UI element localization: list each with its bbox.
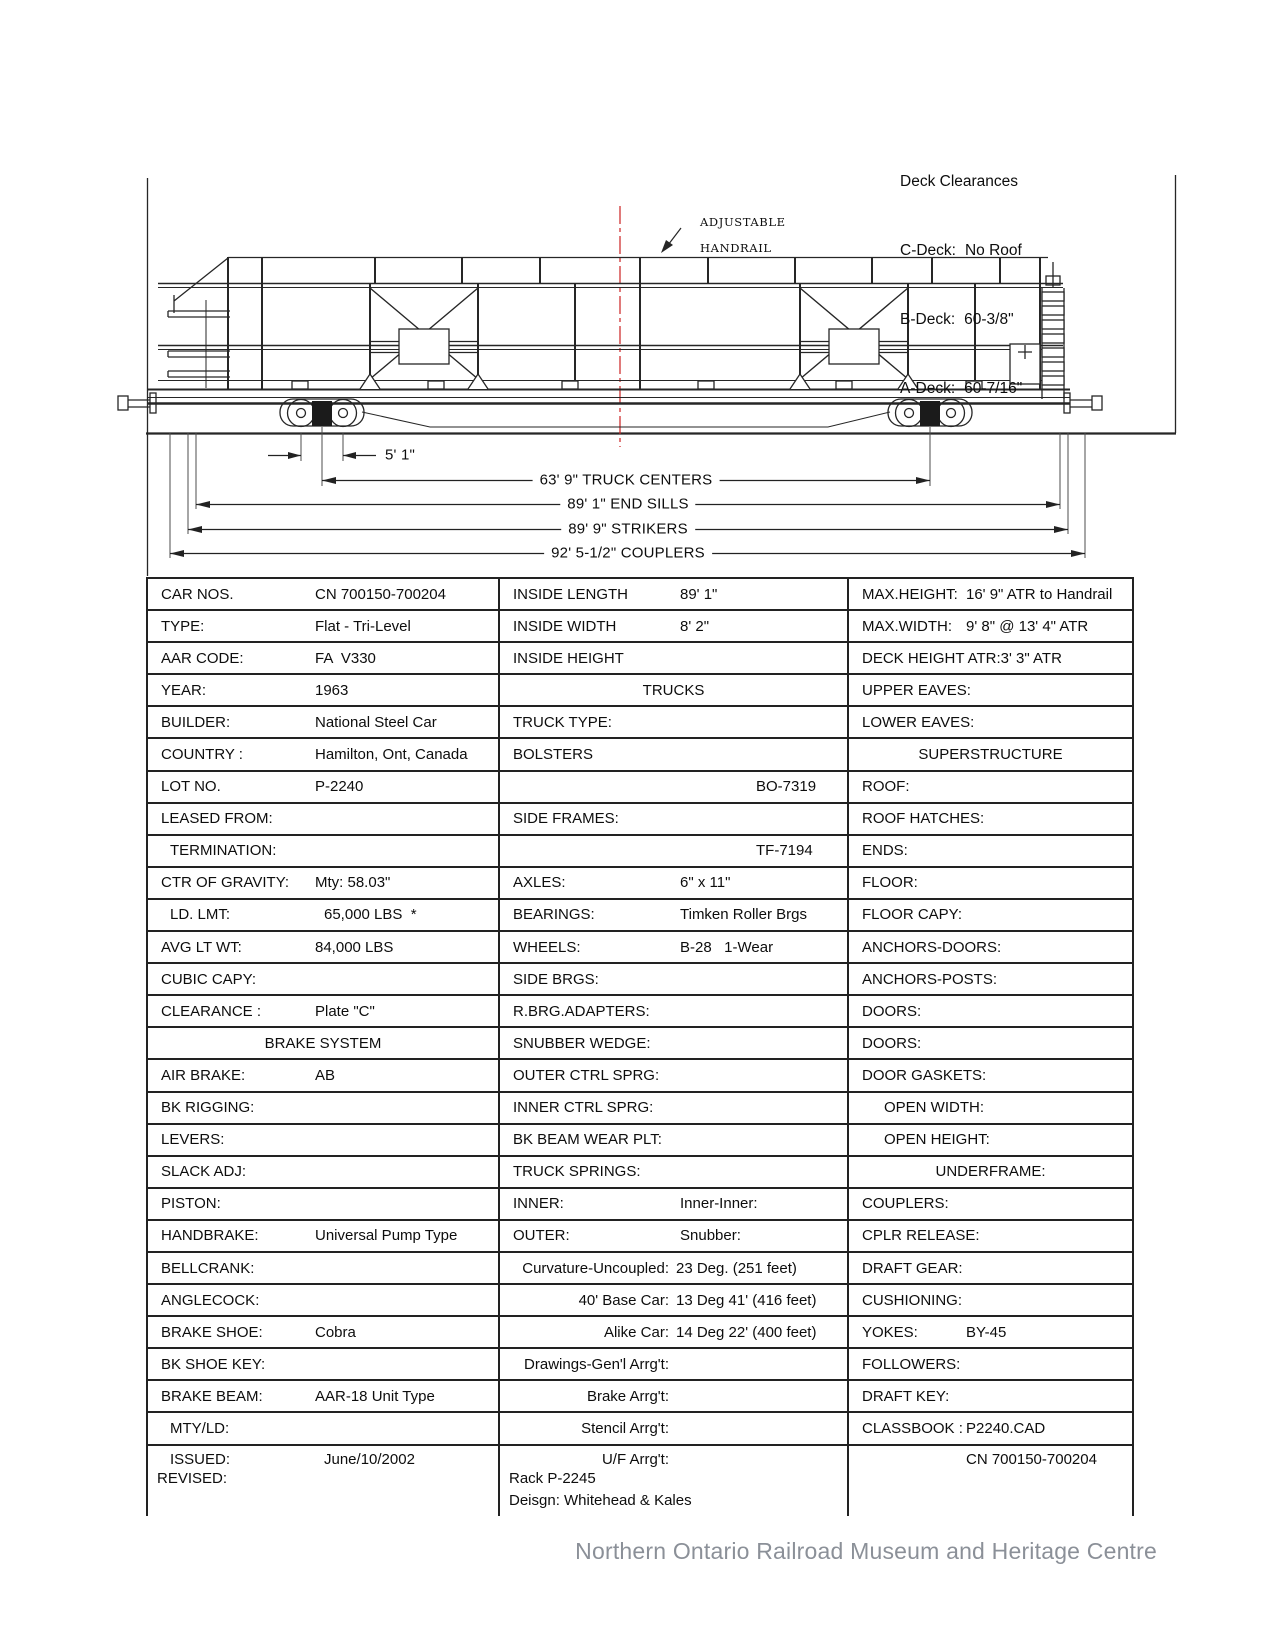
table-cell-label: CLASSBOOK : (862, 1420, 966, 1437)
table-row: 40' Base Car:13 Deg 41' (416 feet) (500, 1285, 847, 1317)
table-cell-label: Alike Car: (513, 1324, 669, 1341)
table-cell-label: BELLCRANK: (161, 1260, 315, 1277)
table-row: BRAKE BEAM:AAR-18 Unit Type (148, 1381, 498, 1413)
table-row: SIDE BRGS: (500, 964, 847, 996)
table-row: MAX.WIDTH:9' 8" @ 13' 4" ATR (849, 611, 1132, 643)
table-row: CAR NOS.CN 700150-700204 (148, 579, 498, 611)
table-cell-label: MAX.WIDTH: (862, 618, 966, 635)
table-row: COUPLERS: (849, 1189, 1132, 1221)
table-row: OPEN WIDTH: (849, 1093, 1132, 1125)
table-row: U/F Arrg't:Rack P-2245Deisgn: Whitehead … (500, 1446, 847, 1516)
table-cell-label: SLACK ADJ: (161, 1163, 315, 1180)
table-row: TRUCK SPRINGS: (500, 1157, 847, 1189)
table-row: DOORS: (849, 1028, 1132, 1060)
table-row: Stencil Arrg't: (500, 1413, 847, 1445)
table-row: INSIDE LENGTH89' 1" (500, 579, 847, 611)
table-row: WHEELS:B-28 1-Wear (500, 932, 847, 964)
table-cell-label: YEAR: (161, 682, 315, 699)
table-row: YEAR:1963 (148, 675, 498, 707)
table-row: ENDS: (849, 836, 1132, 868)
table-row: FLOOR: (849, 868, 1132, 900)
table-row: TRUCK TYPE: (500, 707, 847, 739)
table-cell-label: YOKES: (862, 1324, 966, 1341)
table-row: PISTON: (148, 1189, 498, 1221)
table-cell-value: 23 Deg. (251 feet) (676, 1260, 797, 1277)
table-row: INSIDE WIDTH8' 2" (500, 611, 847, 643)
coupler-right (1064, 393, 1102, 413)
table-cell-label: MTY/LD: (161, 1420, 324, 1437)
table-cell-label: DOORS: (862, 1035, 966, 1052)
table-cell-label: BK BEAM WEAR PLT: (513, 1131, 680, 1148)
table-row: CUSHIONING: (849, 1285, 1132, 1317)
table-cell-value: 1963 (315, 682, 348, 699)
table-cell-label: LOWER EAVES: (862, 714, 974, 731)
table-row: MAX.HEIGHT:16' 9" ATR to Handrail (849, 579, 1132, 611)
table-cell-label: BK SHOE KEY: (161, 1356, 315, 1373)
table-row: UPPER EAVES: (849, 675, 1132, 707)
table-row: Curvature-Uncoupled:23 Deg. (251 feet) (500, 1253, 847, 1285)
table-row: ANCHORS-POSTS: (849, 964, 1132, 996)
table-row: SNUBBER WEDGE: (500, 1028, 847, 1060)
table-row: FOLLOWERS: (849, 1349, 1132, 1381)
truck-left (280, 399, 364, 427)
spec-table-column-trucks: INSIDE LENGTH89' 1"INSIDE WIDTH8' 2"INSI… (498, 579, 847, 1516)
table-cell-label: TRUCKS (643, 682, 705, 699)
table-row: OUTER CTRL SPRG: (500, 1060, 847, 1092)
table-row: BOLSTERS (500, 739, 847, 771)
table-cell-value: June/10/2002 (324, 1451, 415, 1468)
table-row: TYPE:Flat - Tri-Level (148, 611, 498, 643)
table-row: TERMINATION: (148, 836, 498, 868)
table-row: BK BEAM WEAR PLT: (500, 1125, 847, 1157)
table-row: BELLCRANK: (148, 1253, 498, 1285)
table-cell-label: FLOOR: (862, 874, 966, 891)
table-cell-value: Cobra (315, 1324, 356, 1341)
table-row: ISSUED:June/10/2002REVISED: (148, 1446, 498, 1516)
table-cell-label: BRAKE BEAM: (161, 1388, 315, 1405)
table-cell-label: ANGLECOCK: (161, 1292, 315, 1309)
table-row: AXLES:6" x 11" (500, 868, 847, 900)
table-cell-label: SIDE BRGS: (513, 971, 680, 988)
table-row: LOWER EAVES: (849, 707, 1132, 739)
table-cell-extra-line: Deisgn: Whitehead & Kales (509, 1490, 838, 1513)
table-cell-label: Drawings-Gen'l Arrg't: (513, 1356, 669, 1373)
table-row: TF-7194 (500, 836, 847, 868)
table-row: DOORS: (849, 996, 1132, 1028)
table-row: CPLR RELEASE: (849, 1221, 1132, 1253)
table-cell-label: BEARINGS: (513, 906, 680, 923)
dimension-end-sills: 89' 1" END SILLS (560, 496, 695, 513)
table-cell-label: R.BRG.ADAPTERS: (513, 1003, 680, 1020)
table-cell-label: AAR CODE: (161, 650, 315, 667)
table-row: LEASED FROM: (148, 804, 498, 836)
table-cell-value: Snubber: (680, 1227, 741, 1244)
table-cell-label: Stencil Arrg't: (513, 1420, 669, 1437)
table-row: LEVERS: (148, 1125, 498, 1157)
table-cell-label: UPPER EAVES: (862, 682, 971, 699)
table-row: BK SHOE KEY: (148, 1349, 498, 1381)
table-cell-label: ISSUED: (161, 1451, 324, 1468)
table-cell-label: INSIDE HEIGHT (513, 650, 680, 667)
table-cell-label: DOOR GASKETS: (862, 1067, 986, 1084)
table-cell-label: 40' Base Car: (513, 1292, 669, 1309)
table-cell-value: BY-45 (966, 1324, 1006, 1341)
table-cell-label: TYPE: (161, 618, 315, 635)
table-row: CLEARANCE :Plate "C" (148, 996, 498, 1028)
table-cell-label: OPEN WIDTH: (862, 1099, 988, 1116)
table-cell-label: INSIDE WIDTH (513, 618, 680, 635)
table-row: ROOF HATCHES: (849, 804, 1132, 836)
table-cell-label: Brake Arrg't: (513, 1388, 669, 1405)
table-cell-label: CAR NOS. (161, 586, 315, 603)
table-row: Alike Car:14 Deg 22' (400 feet) (500, 1317, 847, 1349)
spec-table-column-general: CAR NOS.CN 700150-700204TYPE:Flat - Tri-… (148, 579, 498, 1516)
table-row: BRAKE SYSTEM (148, 1028, 498, 1060)
table-cell-value: Flat - Tri-Level (315, 618, 411, 635)
dimension-strikers: 89' 9" STRIKERS (561, 521, 695, 538)
deck-clearances-title: Deck Clearances (900, 170, 1022, 193)
table-cell-label: INNER: (513, 1195, 680, 1212)
table-cell-label: FOLLOWERS: (862, 1356, 966, 1373)
table-row: CUBIC CAPY: (148, 964, 498, 996)
table-row: BO-7319 (500, 772, 847, 804)
table-row: FLOOR CAPY: (849, 900, 1132, 932)
table-cell-value: 8' 2" (680, 618, 709, 635)
table-cell-value: 84,000 LBS (315, 939, 393, 956)
table-cell-label: AVG LT WT: (161, 939, 315, 956)
table-cell-label: WHEELS: (513, 939, 680, 956)
table-cell-label: SUPERSTRUCTURE (918, 746, 1062, 763)
dimension-couplers: 92' 5-1/2" COUPLERS (544, 545, 712, 562)
table-cell-value: P2240.CAD (966, 1420, 1045, 1437)
spec-table-column-superstructure: MAX.HEIGHT:16' 9" ATR to HandrailMAX.WID… (847, 579, 1132, 1516)
table-row: MTY/LD: (148, 1413, 498, 1445)
table-cell-extra-line: REVISED: (157, 1468, 489, 1491)
autorack-car-drawing (0, 0, 1275, 576)
table-cell-label: COUNTRY : (161, 746, 315, 763)
table-row: SIDE FRAMES: (500, 804, 847, 836)
table-row: CLASSBOOK :P2240.CAD (849, 1413, 1132, 1445)
table-cell-value: P-2240 (315, 778, 363, 795)
table-cell-label: OPEN HEIGHT: (862, 1131, 990, 1148)
handrail-leader-arrow (661, 228, 681, 253)
table-cell-value: Universal Pump Type (315, 1227, 457, 1244)
table-row: Brake Arrg't: (500, 1381, 847, 1413)
table-cell-value: Hamilton, Ont, Canada (315, 746, 468, 763)
table-cell-value: Plate "C" (315, 1003, 375, 1020)
table-row: BRAKE SHOE:Cobra (148, 1317, 498, 1349)
table-cell-label: BRAKE SHOE: (161, 1324, 315, 1341)
deck-clearances-note: Deck Clearances C-Deck:No Roof B-Deck:60… (900, 124, 1022, 446)
adjustable-handrail-note: ADJUSTABLE HANDRAIL (683, 203, 786, 268)
table-cell-label: ANCHORS-DOORS: (862, 939, 1001, 956)
table-cell-label: MAX.HEIGHT: (862, 586, 966, 603)
table-row: OPEN HEIGHT: (849, 1125, 1132, 1157)
table-cell-value: TF-7194 (680, 842, 813, 859)
spec-table: CAR NOS.CN 700150-700204TYPE:Flat - Tri-… (146, 577, 1134, 1516)
table-cell-label: TRUCK SPRINGS: (513, 1163, 680, 1180)
table-row: SUPERSTRUCTURE (849, 739, 1132, 771)
table-row: UNDERFRAME: (849, 1157, 1132, 1189)
table-row: DECK HEIGHT ATR:3' 3" ATR (849, 643, 1132, 675)
table-row: ANGLECOCK: (148, 1285, 498, 1317)
dimension-axle-spacing: 5' 1" (381, 447, 419, 464)
deck-clearance-c: C-Deck:No Roof (900, 239, 1022, 262)
table-cell-label: LEASED FROM: (161, 810, 315, 827)
table-cell-label: CTR OF GRAVITY: (161, 874, 315, 891)
table-cell-label: CUSHIONING: (862, 1292, 966, 1309)
table-row: LD. LMT:65,000 LBS * (148, 900, 498, 932)
deck-clearance-a: A-Deck:60-7/16" (900, 377, 1022, 400)
table-cell-label: BRAKE SYSTEM (265, 1035, 382, 1052)
end-ladder (1042, 262, 1064, 399)
table-cell-value: 16' 9" ATR to Handrail (966, 586, 1112, 603)
table-cell-label: AXLES: (513, 874, 680, 891)
table-cell-label: CPLR RELEASE: (862, 1227, 980, 1244)
table-cell-label: PISTON: (161, 1195, 315, 1212)
table-cell-label: INNER CTRL SPRG: (513, 1099, 680, 1116)
table-row: DOOR GASKETS: (849, 1060, 1132, 1092)
table-cell-label: BOLSTERS (513, 746, 680, 763)
table-cell-extra-line: Rack P-2245 (509, 1468, 838, 1491)
table-cell-label: Curvature-Uncoupled: (513, 1260, 669, 1277)
table-cell-label: OUTER CTRL SPRG: (513, 1067, 680, 1084)
table-cell-label: HANDBRAKE: (161, 1227, 315, 1244)
table-cell-label: TRUCK TYPE: (513, 714, 680, 731)
table-cell-value: 6" x 11" (680, 874, 730, 891)
table-cell-value: Timken Roller Brgs (680, 906, 807, 923)
table-cell-label: U/F Arrg't: (513, 1451, 669, 1468)
table-cell-value: BO-7319 (680, 778, 816, 795)
table-row: AVG LT WT:84,000 LBS (148, 932, 498, 964)
table-cell-value: 65,000 LBS * (324, 906, 417, 923)
table-row: AIR BRAKE:AB (148, 1060, 498, 1092)
table-cell-label: SNUBBER WEDGE: (513, 1035, 680, 1052)
data-sheet-page: Deck Clearances C-Deck:No Roof B-Deck:60… (0, 0, 1275, 1650)
coupler-left (118, 393, 156, 413)
table-cell-value: AAR-18 Unit Type (315, 1388, 435, 1405)
table-cell-label: CUBIC CAPY: (161, 971, 315, 988)
table-row: BK RIGGING: (148, 1093, 498, 1125)
table-cell-label: OUTER: (513, 1227, 680, 1244)
table-cell-label: DECK HEIGHT ATR: (862, 650, 1001, 667)
extension-lines (170, 427, 1085, 558)
table-cell-label: LD. LMT: (161, 906, 324, 923)
table-row: ANCHORS-DOORS: (849, 932, 1132, 964)
table-cell-value: National Steel Car (315, 714, 437, 731)
table-cell-label: COUPLERS: (862, 1195, 966, 1212)
deck-clearance-b: B-Deck:60-3/8" (900, 308, 1022, 331)
table-row: AAR CODE:FA V330 (148, 643, 498, 675)
table-row: INNER:Inner-Inner: (500, 1189, 847, 1221)
table-cell-label: LOT NO. (161, 778, 315, 795)
table-cell-value: FA V330 (315, 650, 376, 667)
table-row: INNER CTRL SPRG: (500, 1093, 847, 1125)
table-cell-value: 9' 8" @ 13' 4" ATR (966, 618, 1088, 635)
table-cell-label: LEVERS: (161, 1131, 315, 1148)
table-row: R.BRG.ADAPTERS: (500, 996, 847, 1028)
table-cell-label: AIR BRAKE: (161, 1067, 315, 1084)
table-cell-value: AB (315, 1067, 335, 1084)
table-row: DRAFT GEAR: (849, 1253, 1132, 1285)
table-row: BEARINGS:Timken Roller Brgs (500, 900, 847, 932)
footer-credit: Northern Ontario Railroad Museum and Her… (575, 1538, 1157, 1565)
table-row: Drawings-Gen'l Arrg't: (500, 1349, 847, 1381)
table-row: SLACK ADJ: (148, 1157, 498, 1189)
table-cell-value: CN 700150-700204 (315, 586, 446, 603)
table-row: COUNTRY :Hamilton, Ont, Canada (148, 739, 498, 771)
table-cell-value: 14 Deg 22' (400 feet) (676, 1324, 816, 1341)
table-cell-label: ENDS: (862, 842, 966, 859)
table-cell-value: 89' 1" (680, 586, 717, 603)
table-cell-label: SIDE FRAMES: (513, 810, 680, 827)
table-cell-label: ANCHORS-POSTS: (862, 971, 997, 988)
table-cell-label: TERMINATION: (161, 842, 324, 859)
table-cell-label: CLEARANCE : (161, 1003, 315, 1020)
dimension-truck-centers: 63' 9" TRUCK CENTERS (533, 472, 720, 489)
table-cell-value: CN 700150-700204 (966, 1451, 1097, 1468)
left-end-handholds (168, 311, 230, 317)
table-cell-label: UNDERFRAME: (935, 1163, 1045, 1180)
table-row: INSIDE HEIGHT (500, 643, 847, 675)
table-row: HANDBRAKE:Universal Pump Type (148, 1221, 498, 1253)
table-cell-value: 13 Deg 41' (416 feet) (676, 1292, 816, 1309)
table-row: DRAFT KEY: (849, 1381, 1132, 1413)
table-cell-value: B-28 1-Wear (680, 939, 773, 956)
table-cell-label: BUILDER: (161, 714, 315, 731)
table-cell-label: ROOF HATCHES: (862, 810, 984, 827)
table-row: OUTER:Snubber: (500, 1221, 847, 1253)
table-cell-label: INSIDE LENGTH (513, 586, 680, 603)
table-row: LOT NO.P-2240 (148, 772, 498, 804)
table-row: CN 700150-700204 (849, 1446, 1132, 1516)
table-cell-label: DRAFT KEY: (862, 1388, 966, 1405)
table-cell-value: 3' 3" ATR (1001, 650, 1062, 667)
table-cell-label: ROOF: (862, 778, 966, 795)
table-cell-value: Mty: 58.03" (315, 874, 390, 891)
table-cell-label: DRAFT GEAR: (862, 1260, 966, 1277)
table-row: TRUCKS (500, 675, 847, 707)
table-row: ROOF: (849, 772, 1132, 804)
table-row: CTR OF GRAVITY:Mty: 58.03" (148, 868, 498, 900)
table-row: BUILDER:National Steel Car (148, 707, 498, 739)
table-cell-label: DOORS: (862, 1003, 966, 1020)
table-cell-label: BK RIGGING: (161, 1099, 315, 1116)
table-row: YOKES:BY-45 (849, 1317, 1132, 1349)
table-cell-value: Inner-Inner: (680, 1195, 758, 1212)
table-cell-label: FLOOR CAPY: (862, 906, 966, 923)
